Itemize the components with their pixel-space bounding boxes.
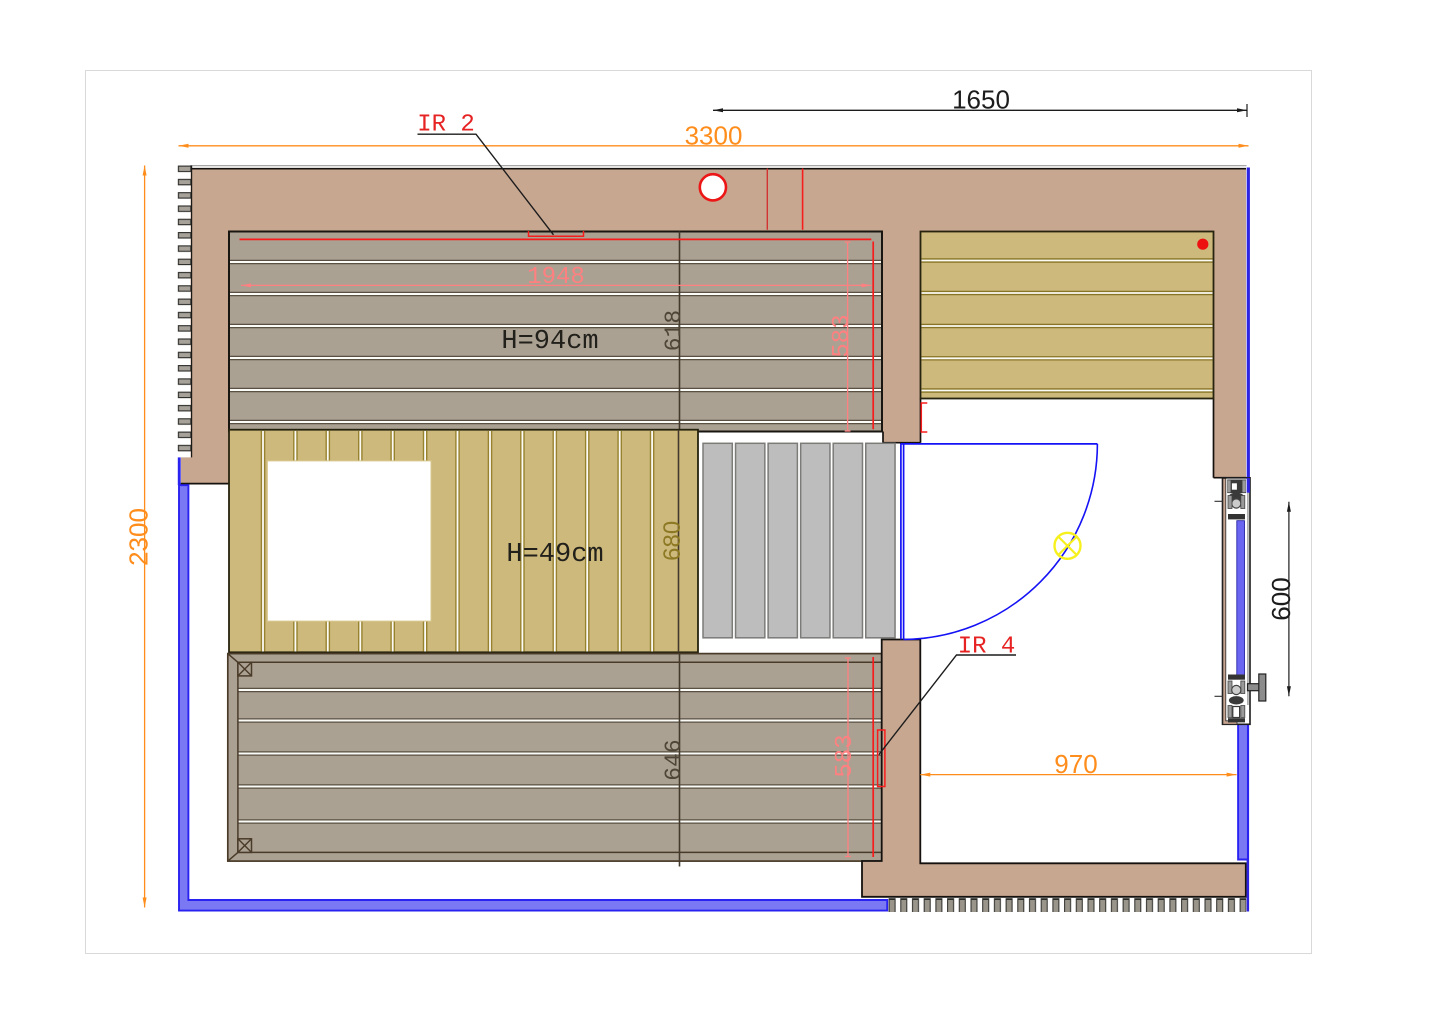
svg-text:1650: 1650 [952, 85, 1010, 115]
svg-text:600: 600 [1266, 577, 1296, 620]
svg-text:IR 4: IR 4 [958, 634, 1016, 661]
svg-text:3300: 3300 [685, 121, 743, 151]
svg-text:583: 583 [832, 734, 859, 777]
svg-text:2300: 2300 [124, 508, 154, 566]
svg-text:618: 618 [661, 310, 687, 351]
svg-text:646: 646 [661, 739, 687, 780]
svg-text:970: 970 [1054, 749, 1097, 779]
svg-text:680: 680 [659, 521, 686, 561]
svg-text:H=49cm: H=49cm [506, 540, 603, 570]
svg-text:H=94cm: H=94cm [501, 327, 598, 357]
svg-text:1948: 1948 [527, 264, 585, 291]
svg-text:583: 583 [829, 314, 856, 357]
